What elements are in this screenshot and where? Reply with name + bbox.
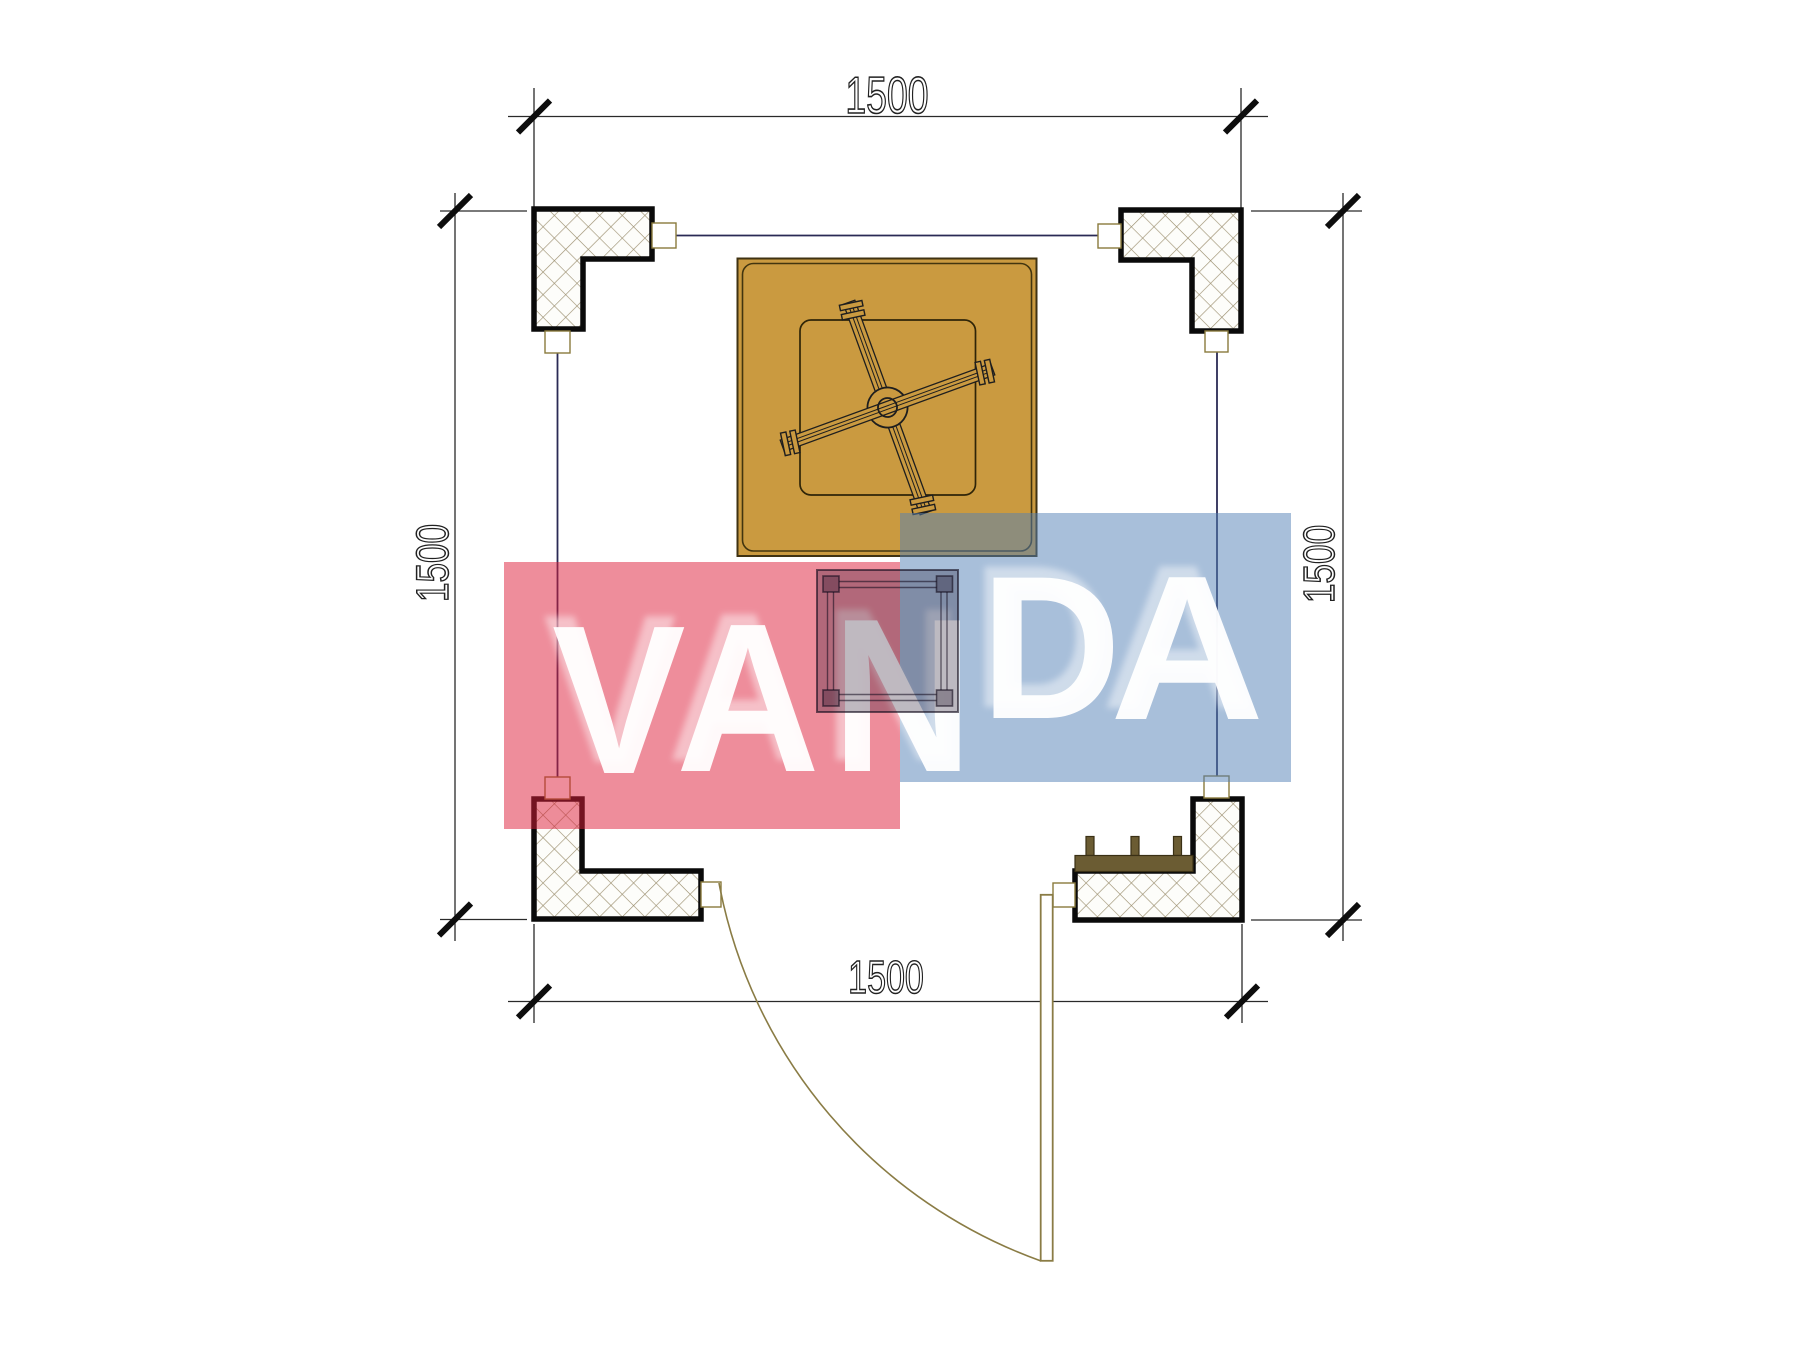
svg-text:V: V	[552, 581, 686, 818]
svg-text:1500: 1500	[1295, 525, 1344, 603]
svg-text:1500: 1500	[407, 524, 458, 602]
svg-text:1500: 1500	[848, 951, 924, 1003]
svg-text:A: A	[1110, 533, 1264, 763]
svg-text:A: A	[676, 579, 820, 816]
svg-text:D: D	[981, 534, 1122, 762]
svg-text:1500: 1500	[845, 66, 928, 125]
